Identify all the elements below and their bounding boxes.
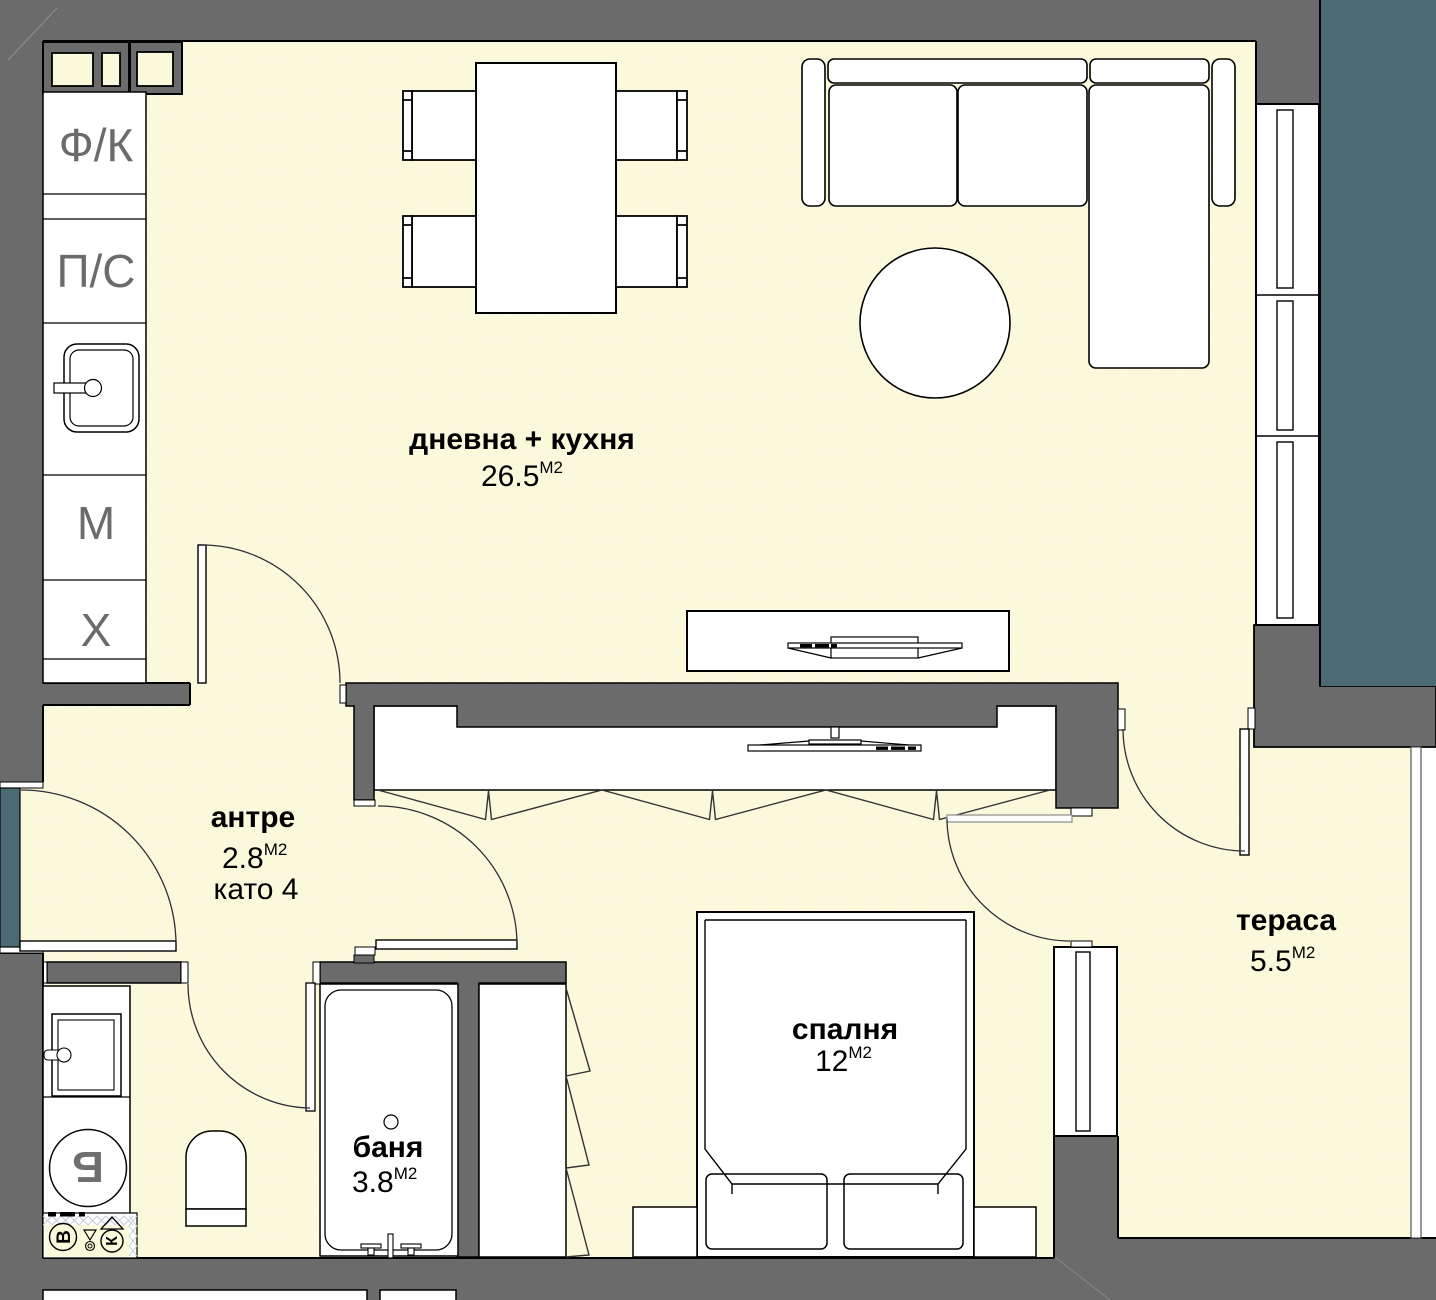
svg-text:дневна + кухня: дневна + кухня: [409, 423, 635, 456]
svg-text:Ф/К: Ф/К: [59, 119, 134, 171]
svg-text:тераса: тераса: [1236, 904, 1336, 937]
svg-text:Б: Б: [72, 1142, 104, 1191]
svg-text:спалня: спалня: [792, 1013, 898, 1046]
svg-text:В: В: [54, 1230, 75, 1244]
svg-text:М: М: [77, 497, 115, 549]
svg-text:К: К: [104, 1236, 121, 1246]
svg-text:баня: баня: [353, 1131, 424, 1164]
svg-text:Х: Х: [81, 604, 112, 656]
svg-text:антре: антре: [211, 801, 296, 834]
svg-text:П/С: П/С: [56, 245, 135, 297]
svg-text:като 4: като 4: [214, 873, 299, 906]
